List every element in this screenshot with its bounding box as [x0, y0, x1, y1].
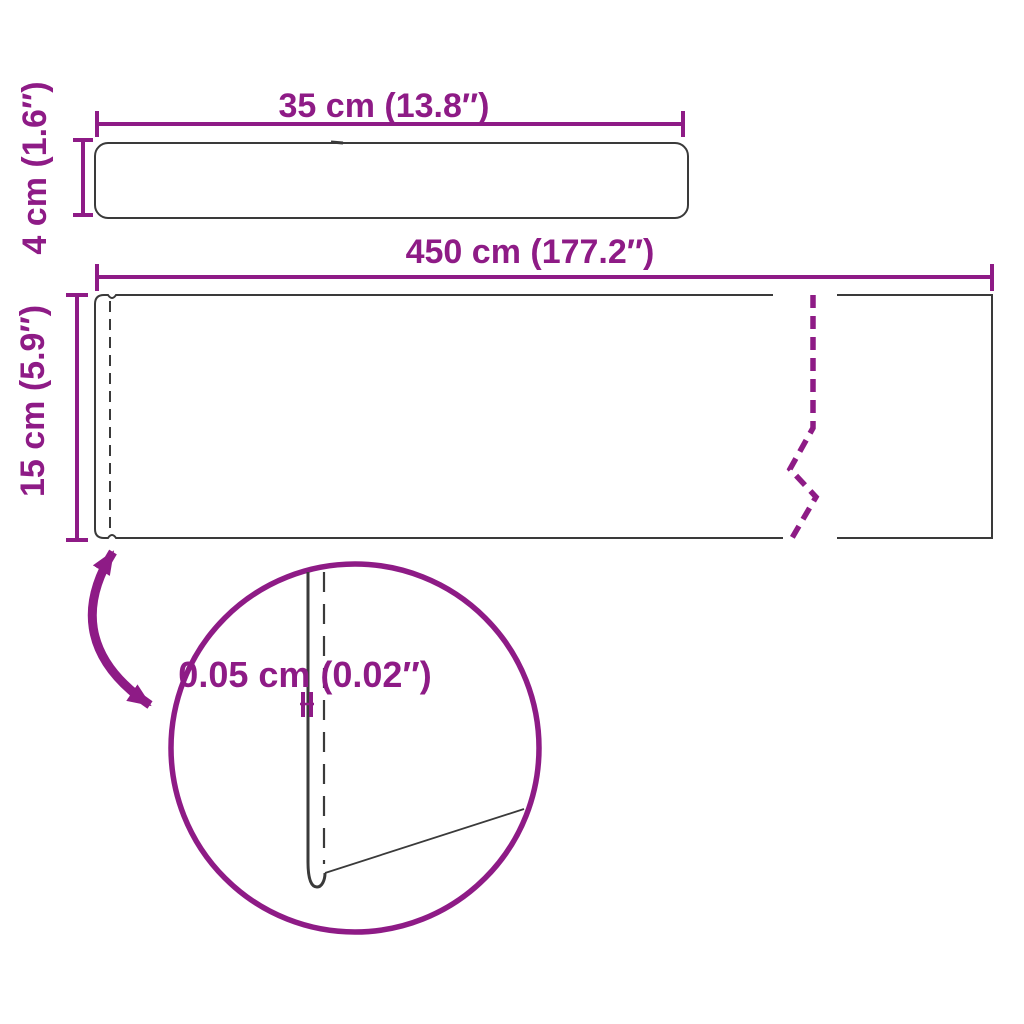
- top-strip-height-label: 4 cm (1.6″): [16, 81, 54, 254]
- top-strip-shape: [95, 143, 688, 218]
- break-line: [790, 295, 816, 538]
- main-strip-outline-left: [95, 295, 783, 538]
- top-strip-width-label: 35 cm (13.8″): [279, 87, 490, 125]
- main-strip-outline-right: [837, 295, 992, 538]
- thickness-detail-group: 0.05 cm (0.02″): [171, 564, 539, 932]
- dimension-diagram-page: 35 cm (13.8″) 4 cm (1.6″): [0, 0, 1024, 1024]
- main-strip-height-dimension: 15 cm (5.9″): [14, 295, 88, 540]
- top-strip-group: 35 cm (13.8″) 4 cm (1.6″): [16, 81, 688, 254]
- detail-circle: [171, 564, 539, 932]
- main-strip-height-label: 15 cm (5.9″): [14, 305, 52, 497]
- curved-double-arrow-icon: [92, 552, 150, 705]
- main-strip-width-dimension: 450 cm (177.2″): [97, 233, 992, 291]
- main-strip-group: 450 cm (177.2″) 15 cm (5.9″): [14, 233, 992, 540]
- top-strip-height-dimension: 4 cm (1.6″): [16, 81, 93, 254]
- thickness-label: 0.05 cm (0.02″): [178, 654, 431, 695]
- main-strip-width-label: 450 cm (177.2″): [406, 233, 655, 271]
- dimension-diagram-svg: 35 cm (13.8″) 4 cm (1.6″): [0, 0, 1024, 1024]
- top-strip-notch-mark: [331, 142, 343, 143]
- top-strip-width-dimension: 35 cm (13.8″): [97, 87, 683, 137]
